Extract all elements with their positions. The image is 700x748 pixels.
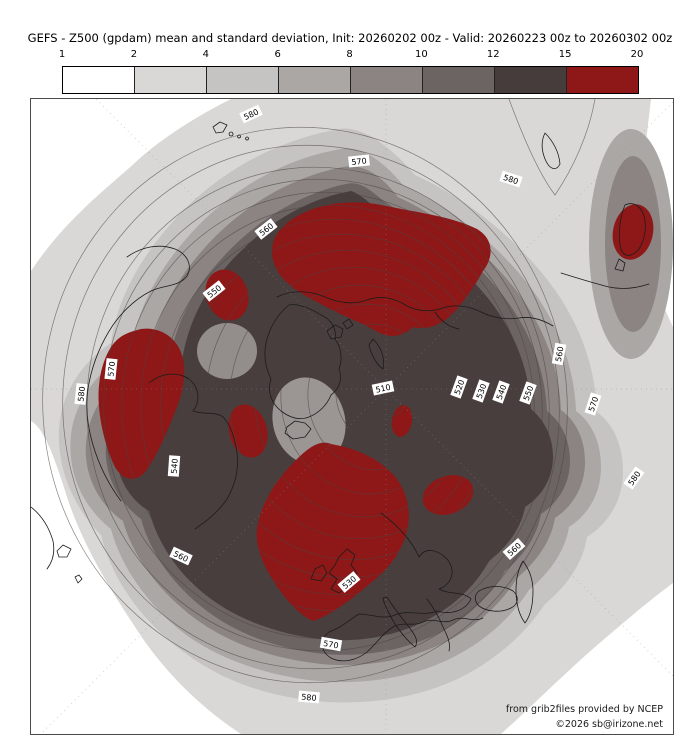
credit-copyright: ©2026 sb@irizone.net xyxy=(555,719,663,730)
colorbar-tick: 15 xyxy=(559,49,572,60)
colorbar-tick: 12 xyxy=(487,49,500,60)
contour-label-text: 570 xyxy=(106,361,117,377)
contour-label-text: 580 xyxy=(301,693,317,703)
colorbar-tick: 20 xyxy=(631,49,644,60)
colorbar-segment-4 xyxy=(351,67,423,93)
colorbar-segment-2 xyxy=(207,67,279,93)
contour-label-text: 580 xyxy=(76,386,87,402)
colorbar-tick: 10 xyxy=(415,49,428,60)
colorbar-tick: 2 xyxy=(131,49,137,60)
map-svg: 5805705805605505105205305405505605705805… xyxy=(31,99,673,734)
colorbar-segment-5 xyxy=(423,67,495,93)
contour-label-570: 570 xyxy=(104,358,117,380)
page-title: GEFS - Z500 (gpdam) mean and standard de… xyxy=(0,31,700,45)
weather-chart-page: GEFS - Z500 (gpdam) mean and standard de… xyxy=(0,0,700,748)
contour-label-580: 580 xyxy=(298,691,320,704)
colorbar-segment-7 xyxy=(567,67,638,93)
colorbar-segment-6 xyxy=(495,67,567,93)
colorbar-segment-1 xyxy=(135,67,207,93)
contour-label-570: 570 xyxy=(348,154,370,167)
contour-label-540: 540 xyxy=(168,455,180,477)
colorbar-ticks: 1246810121520 xyxy=(0,49,700,62)
colorbar xyxy=(62,66,639,94)
colorbar-tick: 1 xyxy=(59,49,65,60)
contour-label-580: 580 xyxy=(74,383,87,405)
colorbar-tick: 8 xyxy=(346,49,352,60)
light-patch-baffin xyxy=(197,323,257,379)
colorbar-tick: 6 xyxy=(274,49,280,60)
colorbar-tick: 4 xyxy=(203,49,209,60)
weather-map: 5805705805605505105205305405505605705805… xyxy=(30,98,674,735)
contour-label-text: 540 xyxy=(170,458,180,474)
credit-source: from grib2files provided by NCEP xyxy=(506,704,663,715)
contour-label-text: 570 xyxy=(351,156,367,167)
colorbar-segment-3 xyxy=(279,67,351,93)
colorbar-segment-0 xyxy=(63,67,135,93)
